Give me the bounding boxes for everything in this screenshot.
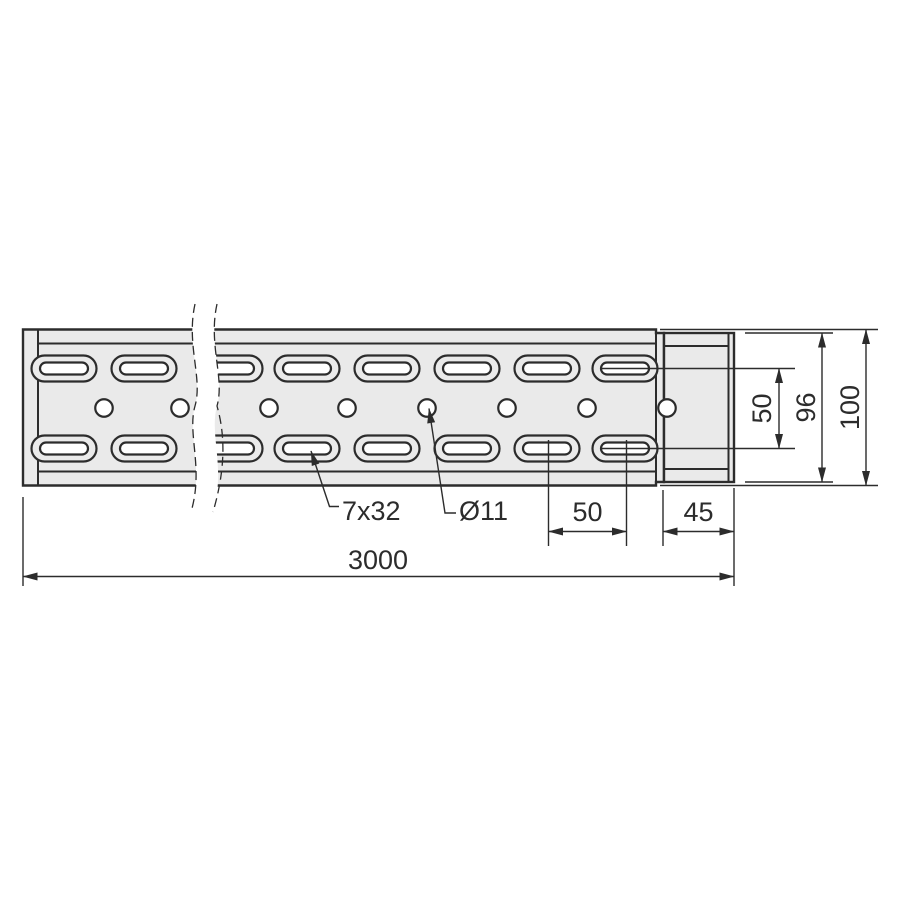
hole-d11 xyxy=(418,399,436,417)
dim-label-50-horizontal: 50 xyxy=(572,497,602,527)
slot-7x32 xyxy=(515,356,580,382)
slot-7x32 xyxy=(435,356,500,382)
slot-7x32 xyxy=(275,356,340,382)
slot-7x32 xyxy=(112,356,177,382)
slot-7x32 xyxy=(32,356,97,382)
dim-label-3000: 3000 xyxy=(348,545,408,575)
hole-d11 xyxy=(95,399,113,417)
slot-7x32 xyxy=(355,356,420,382)
dim-label-50-vertical: 50 xyxy=(747,393,777,423)
hole-d11 xyxy=(338,399,356,417)
dim-label-96: 96 xyxy=(791,392,821,422)
slot-7x32 xyxy=(355,436,420,462)
technical-drawing-canvas: 50 96 100 50 45 xyxy=(0,0,900,900)
label-hole-diameter: Ø11 xyxy=(459,496,508,526)
slot-7x32 xyxy=(435,436,500,462)
slot-7x32 xyxy=(275,436,340,462)
hole-d11 xyxy=(260,399,278,417)
slot-7x32 xyxy=(32,436,97,462)
hole-d11 xyxy=(658,399,676,417)
hole-d11 xyxy=(578,399,596,417)
slot-7x32 xyxy=(515,436,580,462)
hole-d11 xyxy=(171,399,189,417)
slot-7x32 xyxy=(112,436,177,462)
label-slot-size: 7x32 xyxy=(342,496,401,526)
hole-d11 xyxy=(498,399,516,417)
dim-label-45: 45 xyxy=(683,497,713,527)
dim-label-100: 100 xyxy=(835,385,865,430)
